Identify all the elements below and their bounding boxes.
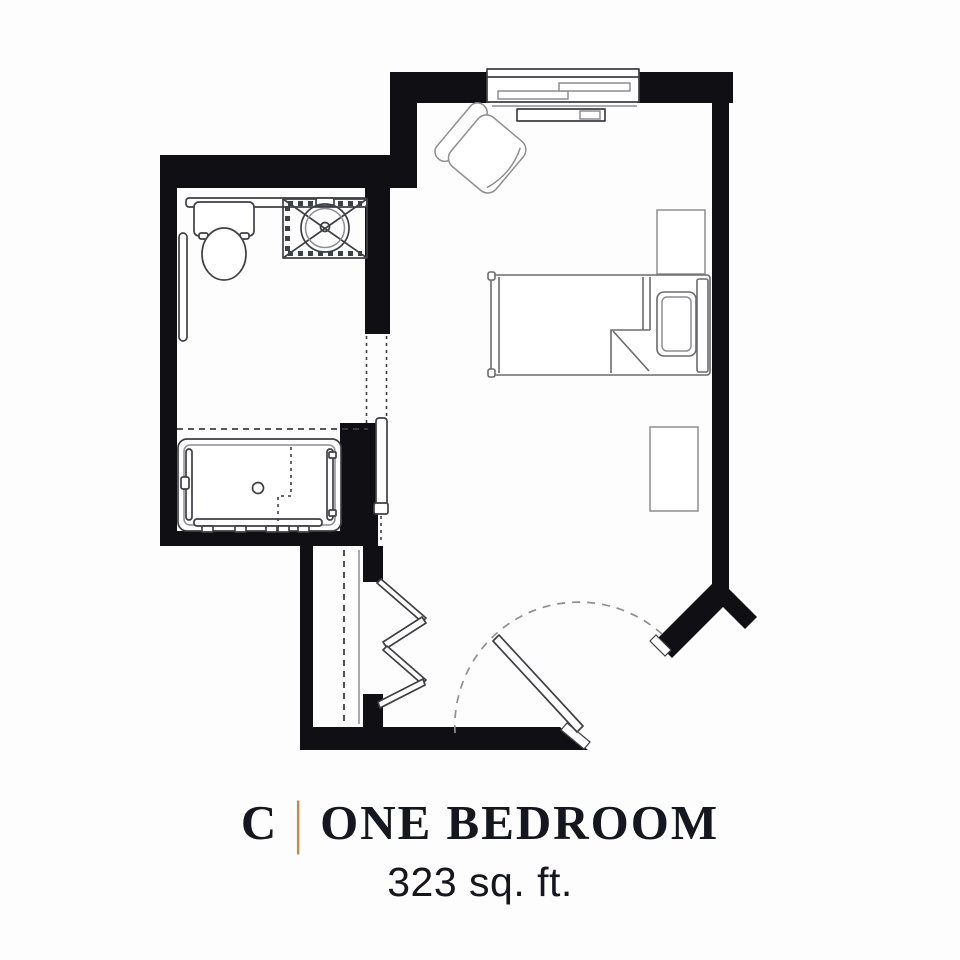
plan-caption: C|ONE BEDROOM 323 sq. ft. (0, 796, 960, 906)
wall-segment (160, 155, 417, 188)
walk-in-shower (178, 439, 341, 532)
wall-segment (300, 727, 588, 750)
window-sash (498, 91, 568, 99)
grab-bar-mount (278, 526, 289, 532)
hvac-unit (517, 109, 605, 121)
bifold-panel (383, 646, 426, 684)
walls (160, 72, 757, 750)
wall-segment (712, 98, 729, 595)
entry (455, 602, 664, 733)
grab-bar-mount (329, 452, 336, 458)
storage-cabinet (650, 427, 698, 511)
window (487, 69, 639, 106)
window-sash (559, 83, 630, 91)
bifold-panel (378, 679, 425, 708)
closet (344, 550, 426, 724)
bed-frame (491, 275, 710, 375)
wall-segment (300, 546, 313, 742)
wall-segment (160, 155, 177, 546)
bifold-door (377, 579, 426, 708)
wall-segment (365, 188, 390, 334)
bed-corner (488, 272, 495, 280)
grab-bar-mount (266, 526, 277, 532)
grab-bar-mount (298, 526, 309, 532)
bifold-panel (383, 617, 426, 648)
grab-bar-mount (235, 526, 246, 532)
unit-area: 323 sq. ft. (0, 859, 960, 906)
floor-plan-page: C|ONE BEDROOM 323 sq. ft. (0, 0, 960, 960)
pocket-door-panel (376, 418, 387, 506)
bifold-panel (377, 579, 426, 622)
grab-bar-mount (329, 510, 336, 516)
bed (488, 272, 710, 377)
headboard (697, 279, 708, 372)
pocket-door-handle (374, 503, 388, 514)
plan-title: C|ONE BEDROOM (0, 796, 960, 850)
bed-corner (488, 369, 495, 377)
toilet-bowl (202, 228, 246, 280)
grab-bar (179, 233, 187, 341)
grab-bar-mount (202, 526, 213, 532)
separator-bar: | (293, 791, 305, 856)
wall-segment (340, 423, 378, 546)
shower-base (178, 439, 341, 531)
grab-bar (194, 519, 322, 526)
wall-segment (363, 694, 383, 728)
wall-segment (363, 546, 383, 582)
toilet (194, 202, 254, 280)
entry-door-leaf (493, 635, 583, 732)
grab-bar-mount (181, 477, 189, 489)
nightstand (657, 210, 705, 274)
unit-type: ONE BEDROOM (320, 795, 719, 850)
bedroom (431, 69, 710, 511)
unit-letter: C (241, 795, 278, 850)
